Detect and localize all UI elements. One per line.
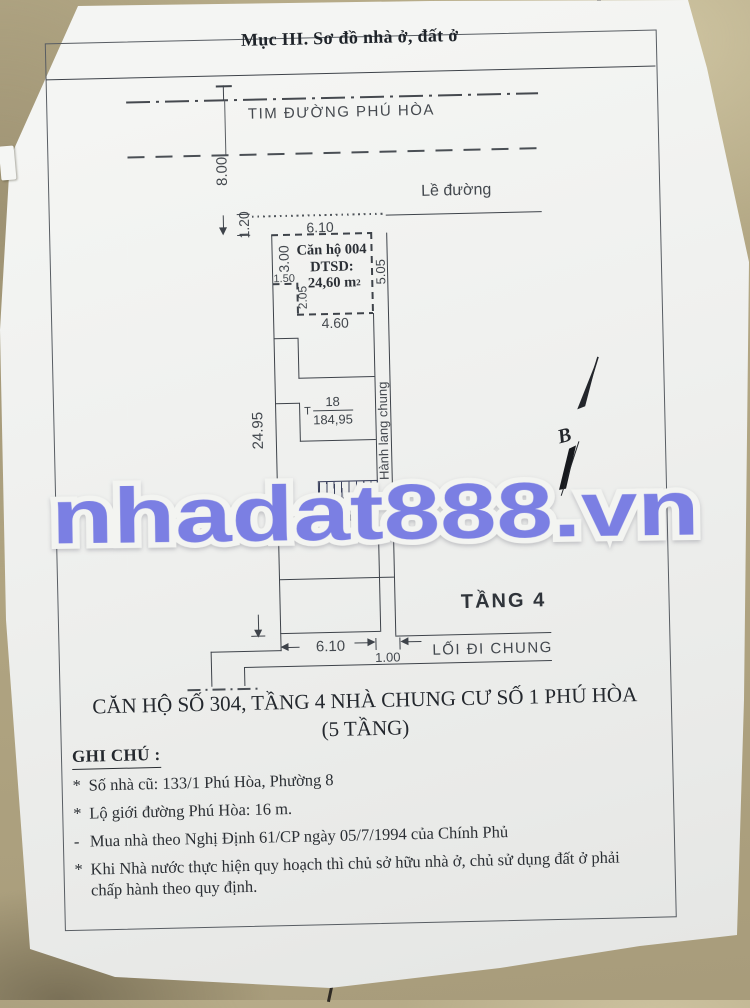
dim-depth: 24.95 bbox=[249, 404, 266, 456]
dim-sidewalk: 1.20 bbox=[236, 205, 253, 245]
note-bullet: * bbox=[74, 859, 91, 901]
watermark-fill: nhadat888.vn bbox=[50, 462, 699, 562]
photo-of-document: { "title": "Mục III. Sơ đồ nhà ở, đất ở"… bbox=[0, 0, 750, 1000]
watermark: nhadat888.vn nhadat888.vn bbox=[0, 455, 750, 569]
dimension-tick bbox=[237, 235, 250, 237]
notes-heading: GHI CHÚ : bbox=[72, 745, 161, 770]
notes-list: * Số nhà cũ: 133/1 Phú Hòa, Phường 8 * L… bbox=[72, 761, 675, 908]
dim-205: 2.05 bbox=[294, 275, 311, 319]
left-arrow bbox=[400, 637, 408, 645]
note-bullet: - bbox=[74, 831, 90, 852]
note-bullet: * bbox=[73, 803, 89, 824]
note-item: * Khi Nhà nước thực hiện quy hoạch thì c… bbox=[74, 845, 675, 901]
parcel-label: T 18 184,95 bbox=[304, 393, 353, 427]
floor-label: TẦNG 4 bbox=[428, 591, 578, 610]
unit-name: Căn hộ 004 bbox=[281, 241, 381, 259]
note-bullet: * bbox=[72, 775, 88, 796]
parcel-area: 184,95 bbox=[313, 412, 353, 428]
unit-area-sup: 2 bbox=[356, 277, 361, 287]
parcel-fraction: 18 184,95 bbox=[313, 393, 354, 427]
dimension-tick bbox=[237, 214, 250, 216]
note-text: Khi Nhà nước thực hiện quy hoạch thì chủ… bbox=[90, 846, 651, 901]
north-letter: B bbox=[554, 424, 574, 449]
parcel-number: 18 bbox=[325, 394, 340, 409]
sidewalk-label: Lề đường bbox=[406, 182, 506, 200]
down-arrow bbox=[219, 227, 227, 235]
right-arrow bbox=[367, 638, 375, 646]
walkway-label: LỐI ĐI CHUNG bbox=[407, 638, 577, 658]
parcel-prefix: T bbox=[304, 405, 311, 417]
unit-area-number: 24,60 m bbox=[308, 274, 357, 292]
dim-front-bottom: 6.10 bbox=[300, 637, 360, 654]
dim-460: 4.60 bbox=[305, 314, 365, 331]
watermark-text: nhadat888.vn nhadat888.vn bbox=[50, 462, 699, 562]
